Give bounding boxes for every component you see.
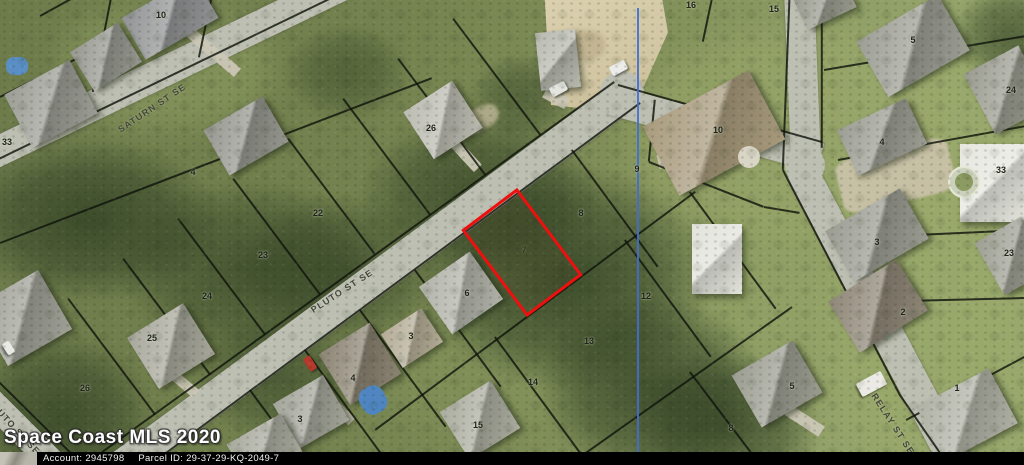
footer-info-bar: Account: 2945798 Parcel ID: 29-37-29-KQ-… xyxy=(37,452,1024,465)
street-labels-layer: SATURN ST SEPLUTO ST SERELAY ST SEPLUTO … xyxy=(0,0,1024,465)
account-value: 2945798 xyxy=(85,453,124,464)
account-label: Account: xyxy=(43,453,82,464)
mls-watermark: Space Coast MLS 2020 xyxy=(4,427,221,449)
footer-corner-image xyxy=(0,452,37,465)
street-name-label: RELAY ST SE xyxy=(869,391,916,456)
street-name-label: PLUTO ST SE xyxy=(309,267,375,315)
account-label-and-value: Account: 2945798 xyxy=(43,453,124,464)
parcel-id-label: Parcel ID: xyxy=(138,453,183,464)
parcel-id-value: 29-37-29-KQ-2049-7 xyxy=(186,453,279,464)
street-name-label: SATURN ST SE xyxy=(116,82,188,135)
parcel-id-label-and-value: Parcel ID: 29-37-29-KQ-2049-7 xyxy=(138,453,279,464)
mls-aerial-parcel-map: 1033422232425262634315678912131481615104… xyxy=(0,0,1024,465)
